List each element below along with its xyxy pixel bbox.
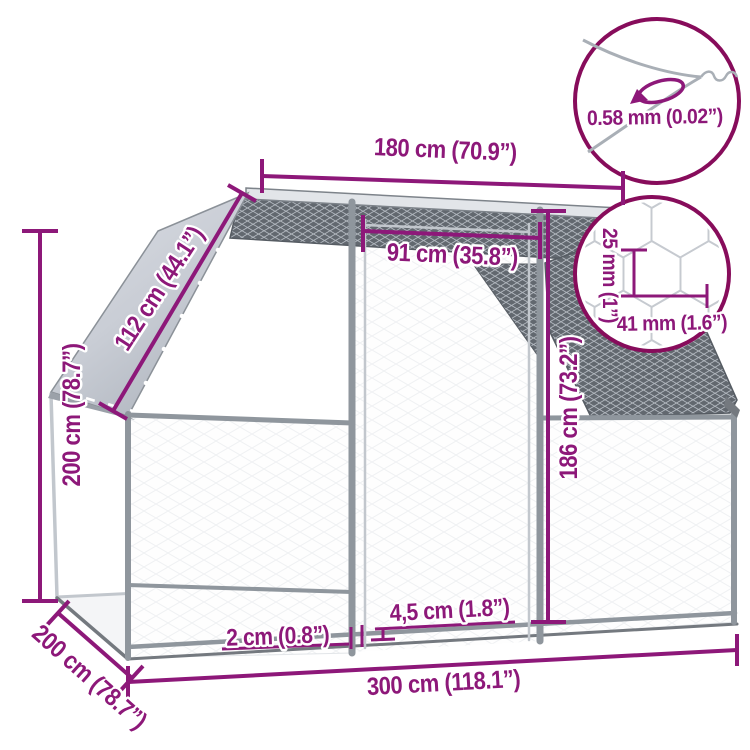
wire-thickness-label: 0.58 mm (0.02”) [587, 105, 723, 130]
cage-diagram-svg: 0.58 mm (0.02”) 25 mm (1”) 41 mm (1.6”) … [0, 0, 750, 750]
top-width-label: 180 cm (70.9”) [373, 133, 517, 166]
total-height-label: 200 cm (78.7”) [58, 344, 86, 487]
dimension-total-height: 200 cm (78.7”) [22, 231, 85, 601]
mesh-cell-height-label: 25 mm (1”) [598, 228, 621, 323]
product-dimension-diagram: 0.58 mm (0.02”) 25 mm (1”) 41 mm (1.6”) … [0, 0, 750, 750]
door-height-label: 186 cm (73.2”) [555, 337, 583, 480]
mesh-cell-width-label: 41 mm (1.6”) [617, 311, 728, 336]
detail-circle-wire: 0.58 mm (0.02”) [575, 19, 739, 183]
tube-gap-label: 2 cm (0.8”) [226, 621, 330, 651]
door-width-label: 91 cm (35.8”) [386, 238, 518, 271]
